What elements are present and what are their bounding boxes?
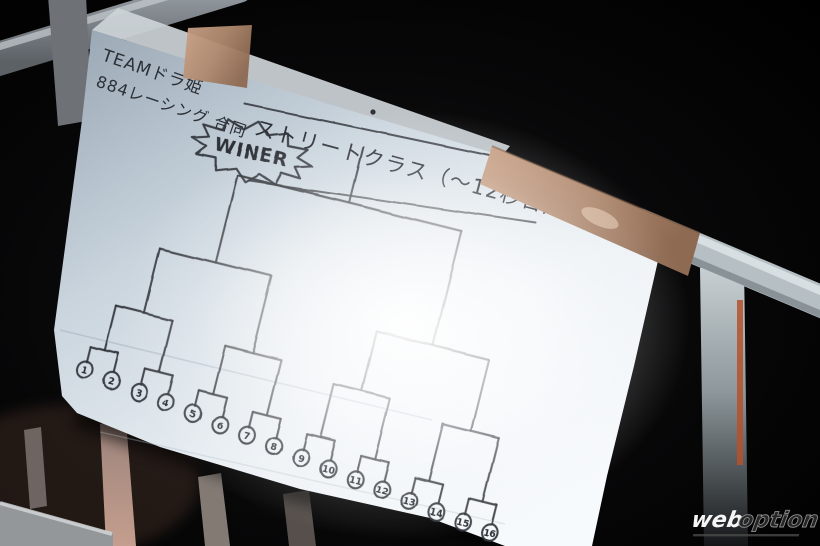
night-photo-scene: TEAMドラ姫 884レーシング 合同 ストリートクラス（〜12秒台） WINE…	[0, 0, 820, 546]
flash-glow	[120, 110, 690, 540]
tape-top-left	[183, 25, 252, 88]
watermark-option: option	[736, 507, 820, 533]
photo-canvas: TEAMドラ姫 884レーシング 合同 ストリートクラス（〜12秒台） WINE…	[0, 0, 820, 546]
railing-right-post	[700, 264, 748, 546]
watermark: web option	[689, 507, 820, 536]
watermark-subline	[693, 534, 799, 536]
orange-reflection-stripe	[737, 300, 743, 465]
